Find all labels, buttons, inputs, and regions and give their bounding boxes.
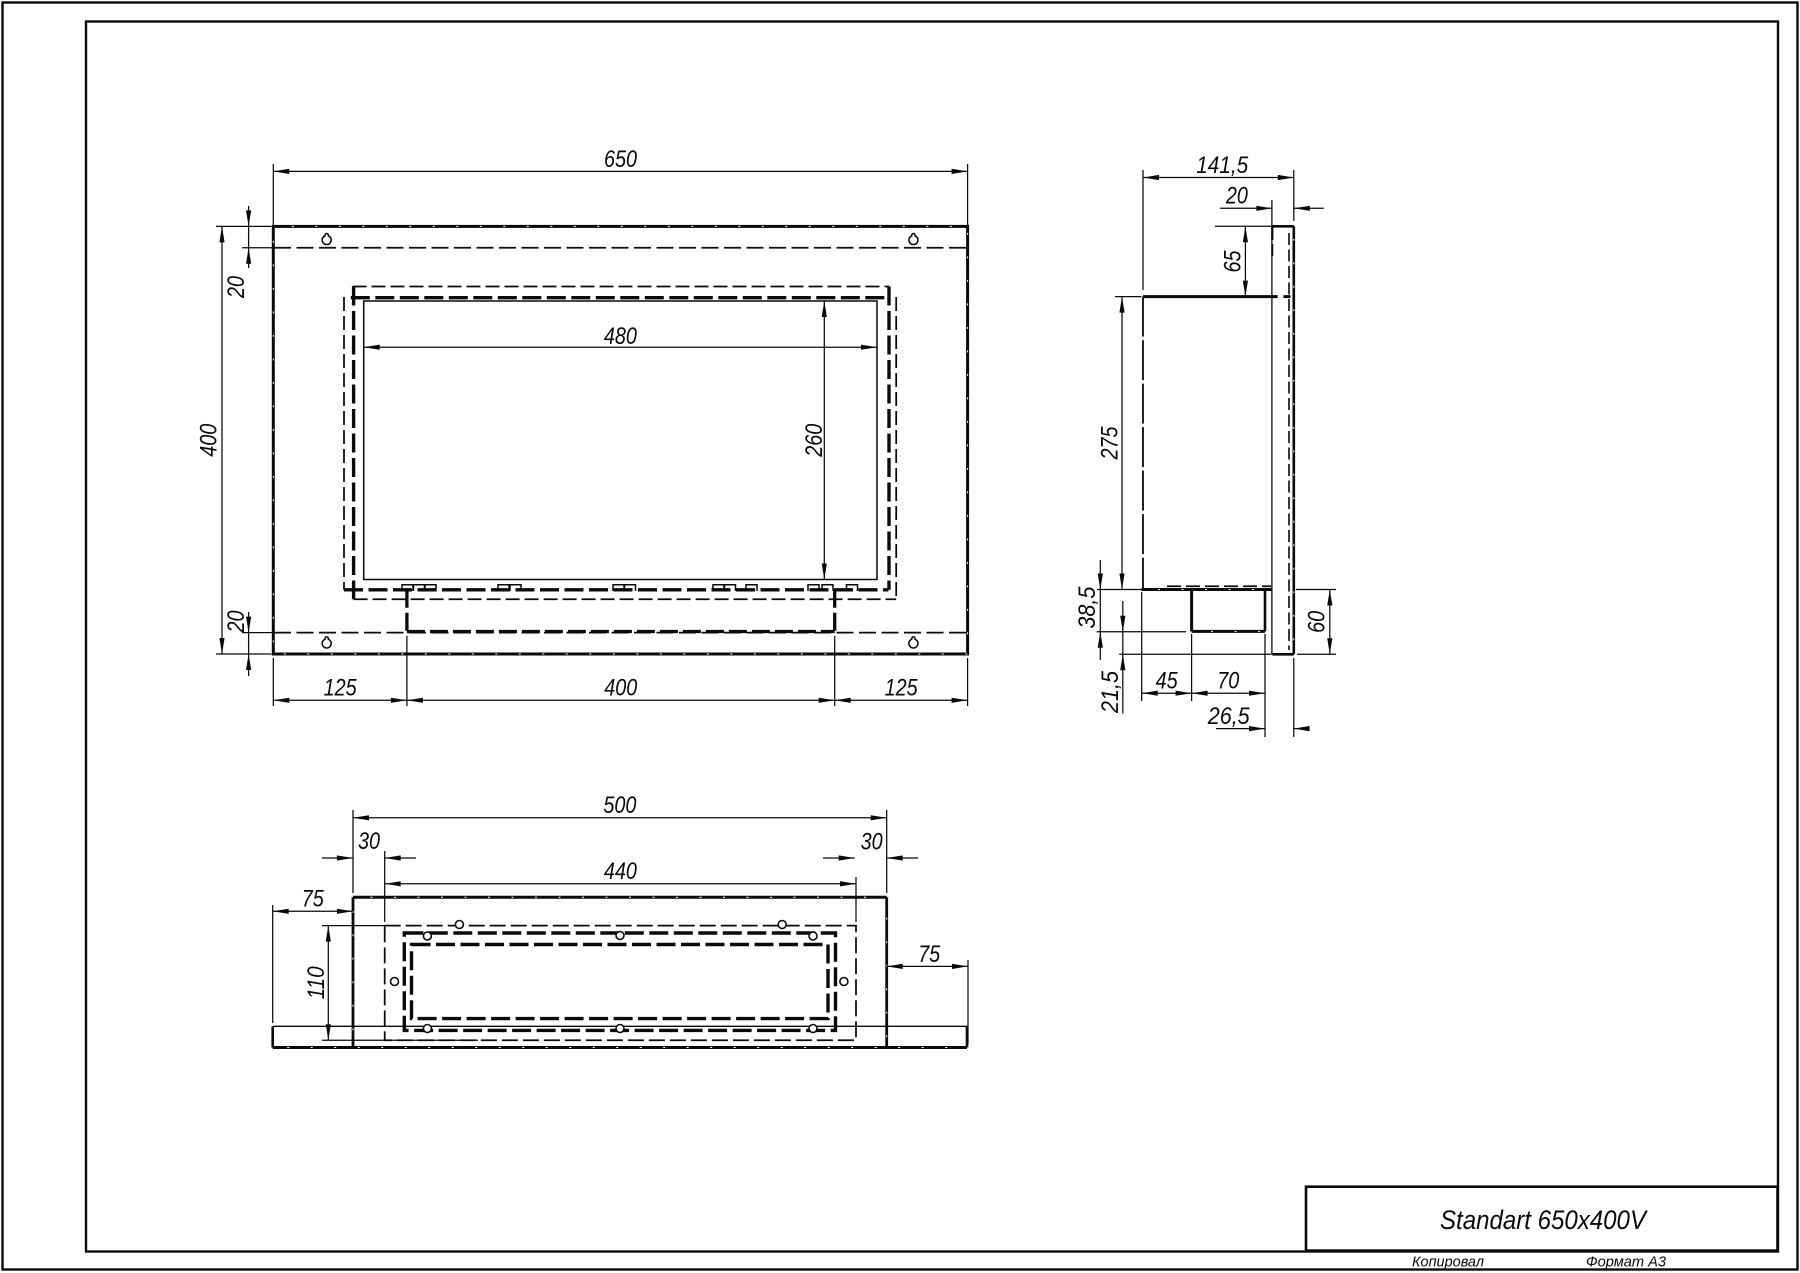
svg-text:65: 65 [1220, 250, 1247, 273]
svg-text:Standart 650x400V: Standart 650x400V [1440, 1205, 1649, 1235]
svg-text:Копировал: Копировал [1412, 1254, 1485, 1271]
svg-text:275: 275 [1097, 426, 1124, 460]
svg-text:75: 75 [918, 941, 941, 968]
svg-text:60: 60 [1304, 610, 1331, 633]
svg-text:125: 125 [324, 675, 358, 702]
svg-text:75: 75 [302, 886, 325, 913]
svg-text:20: 20 [223, 610, 250, 633]
svg-text:38,5: 38,5 [1074, 586, 1101, 629]
svg-text:500: 500 [603, 792, 637, 819]
svg-text:26,5: 26,5 [1207, 703, 1250, 730]
svg-text:70: 70 [1217, 668, 1240, 695]
svg-text:260: 260 [801, 423, 828, 457]
svg-text:20: 20 [1225, 183, 1248, 210]
svg-text:440: 440 [604, 858, 638, 885]
svg-text:650: 650 [604, 146, 638, 173]
svg-text:480: 480 [604, 323, 638, 350]
svg-text:45: 45 [1156, 668, 1179, 695]
svg-text:20: 20 [223, 275, 250, 298]
svg-text:400: 400 [604, 675, 638, 702]
svg-text:Формат А3: Формат А3 [1586, 1254, 1667, 1271]
svg-text:400: 400 [196, 423, 223, 457]
svg-text:30: 30 [861, 829, 884, 856]
svg-text:30: 30 [358, 828, 381, 855]
svg-text:21,5: 21,5 [1097, 670, 1124, 713]
svg-text:110: 110 [303, 966, 330, 1000]
svg-text:141,5: 141,5 [1196, 152, 1249, 179]
svg-text:125: 125 [885, 675, 919, 702]
